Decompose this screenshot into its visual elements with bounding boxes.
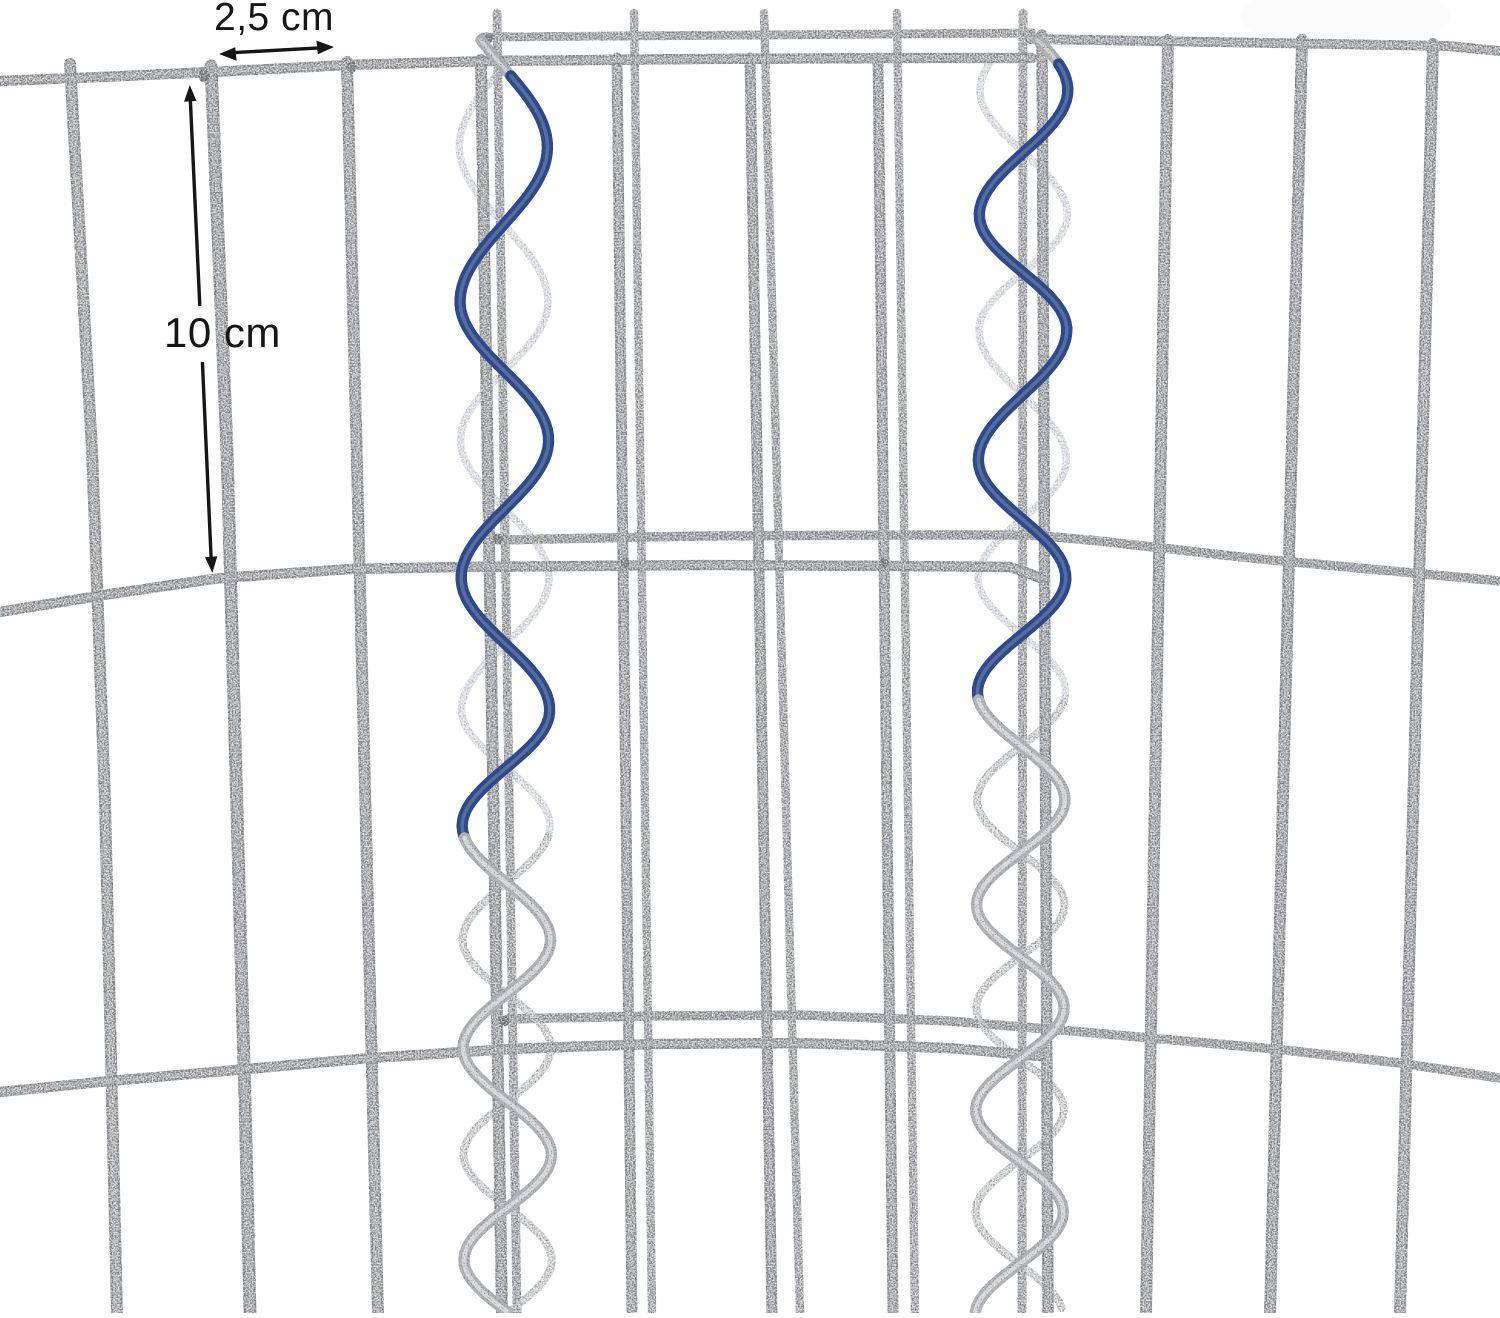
svg-text:2,5 cm: 2,5 cm xyxy=(214,0,334,39)
svg-text:10 cm: 10 cm xyxy=(164,309,281,356)
